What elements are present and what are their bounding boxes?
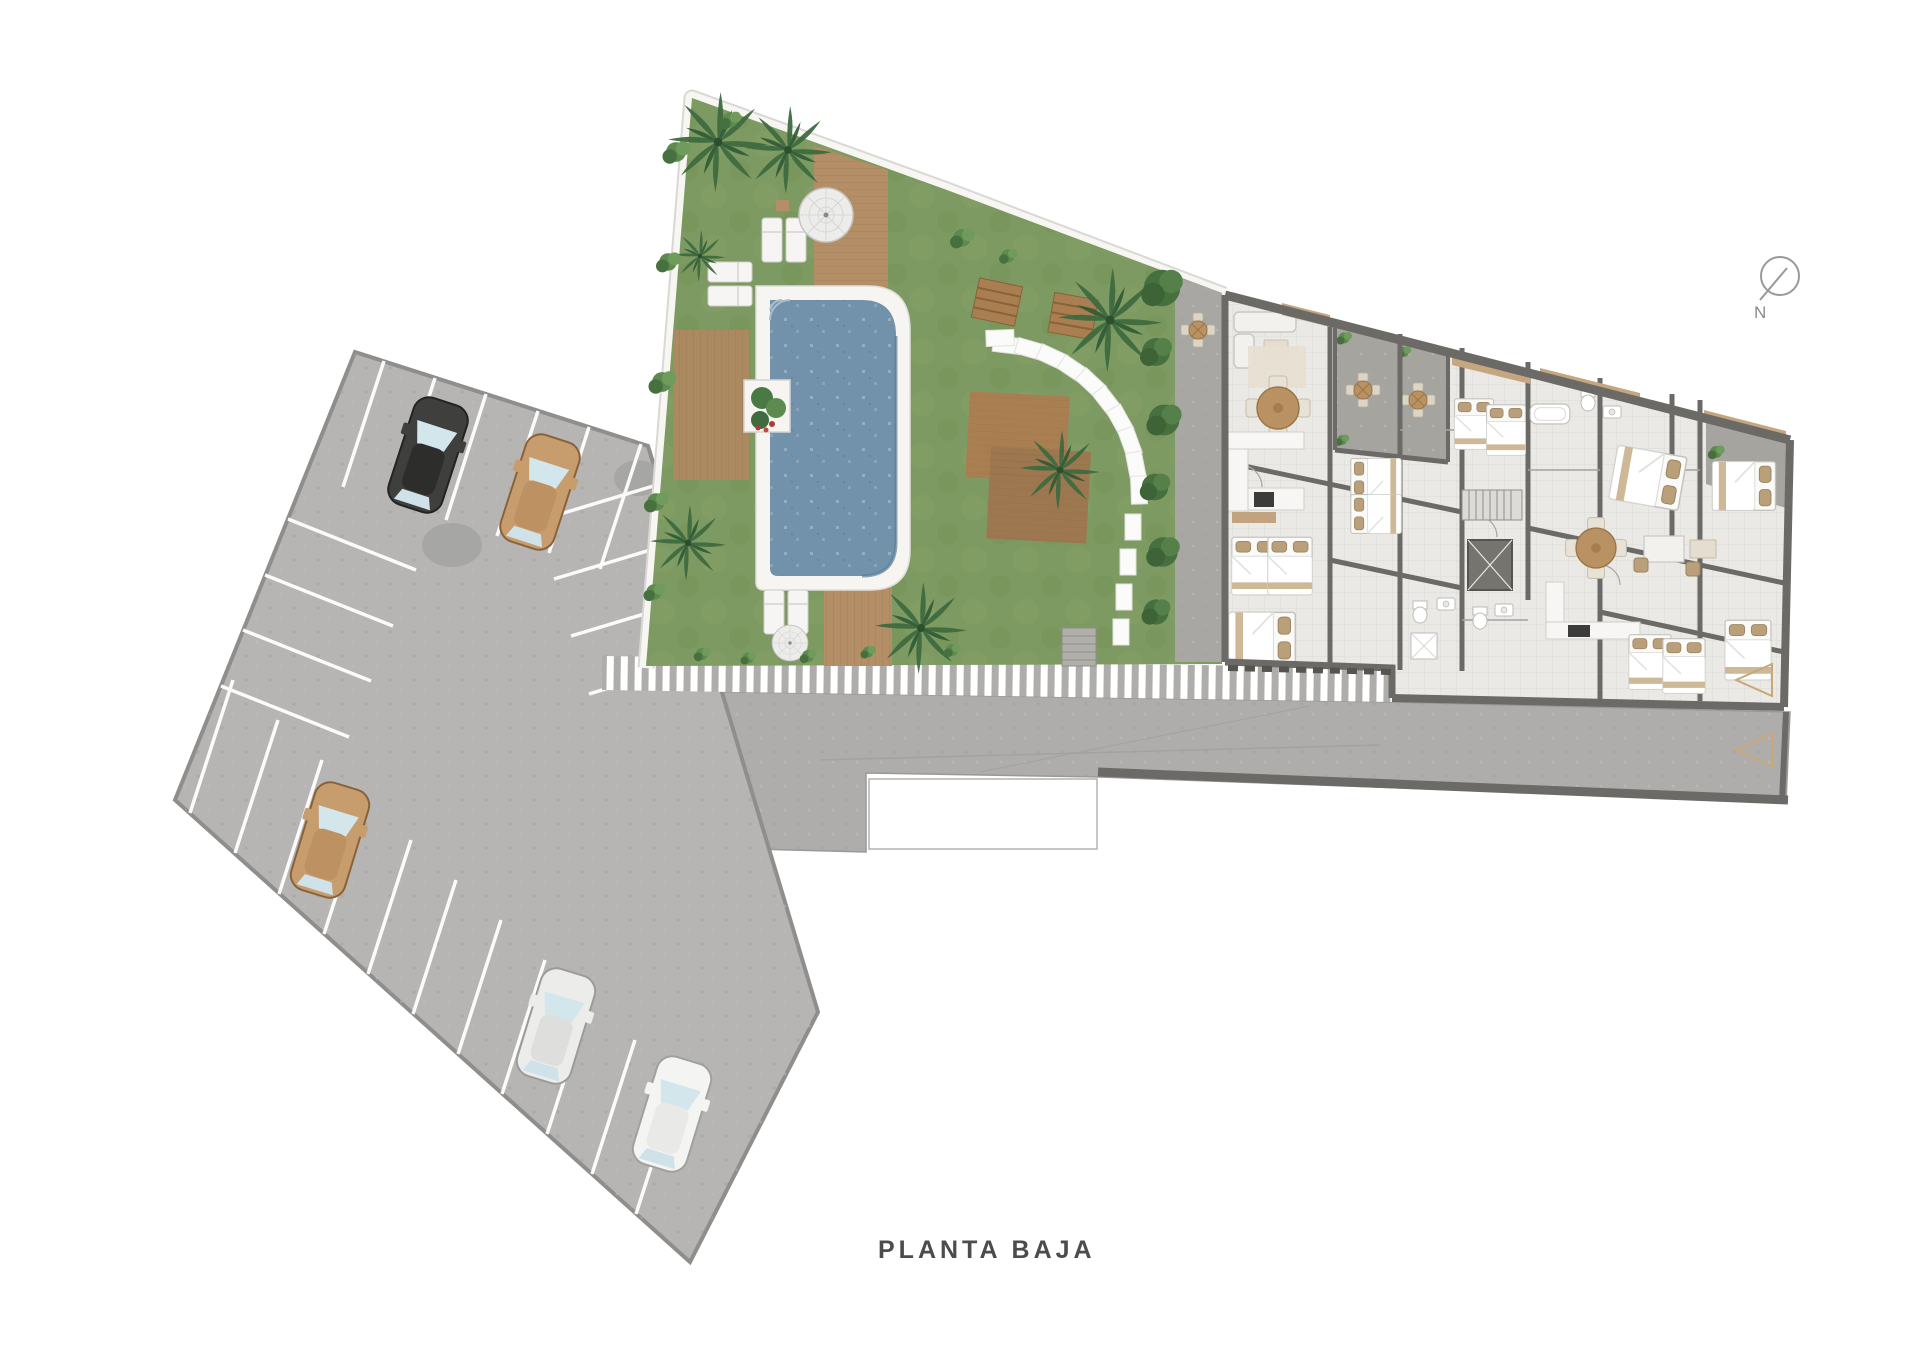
toilet xyxy=(1473,607,1487,629)
bed xyxy=(1268,537,1312,594)
bed xyxy=(1351,459,1401,498)
planter-box xyxy=(744,380,790,433)
bed xyxy=(1229,612,1296,663)
plan-title: PLANTA BAJA xyxy=(878,1236,1096,1264)
bathtub xyxy=(1530,404,1570,424)
shower xyxy=(1411,633,1437,659)
sink xyxy=(1437,598,1455,610)
stair-core xyxy=(1462,490,1522,590)
swimming-pool xyxy=(756,286,910,590)
toilet xyxy=(1413,601,1427,623)
deck-bench xyxy=(971,278,1022,326)
bed xyxy=(1663,639,1705,694)
side-table xyxy=(776,200,789,211)
sink xyxy=(1495,604,1513,616)
bed xyxy=(1609,445,1687,510)
floor-plan-drawing: N PLANTA BAJA xyxy=(0,0,1920,1371)
garden-stair xyxy=(1062,628,1096,666)
garage-ramp-cutout xyxy=(869,779,1097,849)
palm-shadow xyxy=(422,523,482,567)
bed xyxy=(1351,495,1401,534)
bed xyxy=(1725,620,1771,680)
compass-label: N xyxy=(1754,303,1766,322)
bed xyxy=(1487,405,1526,455)
site-plan-page: N PLANTA BAJA xyxy=(0,0,1920,1371)
parasol xyxy=(799,188,853,242)
bed xyxy=(1713,462,1776,511)
sink xyxy=(1603,406,1621,418)
